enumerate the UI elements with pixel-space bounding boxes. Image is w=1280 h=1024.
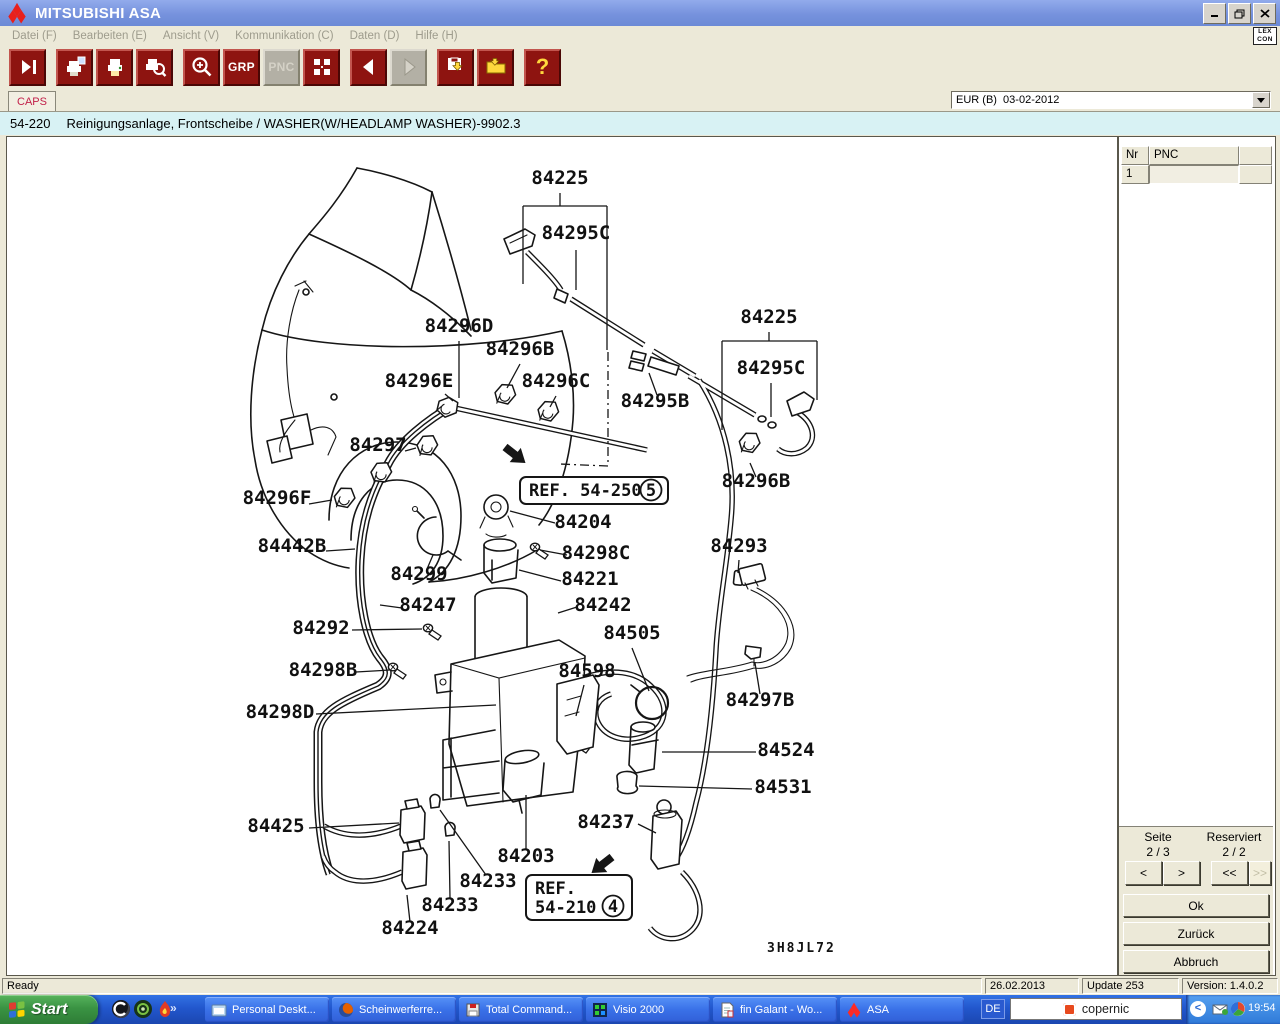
tray-collapse-chevron[interactable]: < (1190, 1001, 1206, 1017)
document-icon (719, 1002, 735, 1018)
restore-icon (1234, 9, 1245, 19)
page-prev-button[interactable]: < (1125, 861, 1162, 885)
part-number-label[interactable]: 84598 (558, 660, 615, 682)
part-number-label[interactable]: 84298C (562, 542, 631, 564)
washer-pump-cylinder (631, 722, 655, 732)
status-update: Update 253 (1082, 978, 1179, 994)
pump-packing (617, 771, 638, 793)
part-number-label[interactable]: 84298D (246, 701, 315, 723)
menu-item-datei[interactable]: Datei (F) (4, 30, 65, 42)
copernic-search-box[interactable]: copernic (1010, 998, 1182, 1020)
task-word-document[interactable]: fin Galant - Wo... (713, 997, 837, 1022)
globe-tray-icon[interactable] (1230, 1001, 1246, 1017)
ref-box[interactable]: REF. 54-2505 (520, 477, 668, 504)
page-next-button[interactable]: > (1163, 861, 1200, 885)
task-firefox[interactable]: Scheinwerferre... (332, 997, 456, 1022)
lexcon-badge: LEX CON (1253, 27, 1277, 45)
part-number-label[interactable]: 84442B (258, 535, 327, 557)
task-label: Total Command... (486, 1004, 572, 1016)
tab-row: CAPS EUR (B) 03-02-2012 (0, 89, 1280, 111)
pnc-button: PNC (263, 49, 300, 86)
close-icon (1260, 9, 1270, 18)
quicklaunch-c-icon[interactable] (112, 1000, 130, 1018)
print-setup-icon (63, 55, 87, 79)
start-button[interactable]: Start (0, 995, 98, 1024)
lexcon-line1: LEX (1254, 28, 1276, 36)
toolbar: GRP PNC ? (0, 45, 1280, 89)
main-area: REF. 54-2505REF.54-2104 8422584295C84296… (0, 135, 1280, 977)
part-number-label[interactable]: 84221 (561, 568, 618, 590)
parts-panel: Nr PNC 1 Seite 2 / 3 Reserviert 2 / 2 < … (1118, 136, 1276, 976)
lexcon-line2: CON (1254, 36, 1276, 44)
menu-item-daten[interactable]: Daten (D) (342, 30, 408, 42)
washer-nozzle (787, 392, 814, 416)
save-export-icon (444, 55, 468, 79)
part-number-label[interactable]: 84298B (289, 659, 358, 681)
headlamp-washer-motor (402, 848, 427, 889)
part-number-label[interactable]: 84425 (247, 815, 304, 837)
column-header-extra (1239, 146, 1272, 165)
task-label: ASA (867, 1004, 889, 1016)
status-date: 26.02.2013 (985, 978, 1079, 994)
part-number-label[interactable]: 84296E (385, 370, 454, 392)
menu-item-hilfe[interactable]: Hilfe (H) (407, 30, 465, 42)
seite-value: 2 / 3 (1127, 845, 1189, 859)
chevron-down-icon (1257, 98, 1265, 103)
part-number-label[interactable]: 84242 (574, 594, 631, 616)
windows-logo-icon (8, 1001, 26, 1019)
region-select-dropdown-button[interactable] (1252, 92, 1270, 108)
window-title: MITSUBISHI ASA (35, 5, 161, 22)
diagram-canvas[interactable]: REF. 54-2505REF.54-2104 8422584295C84296… (6, 136, 1118, 976)
exit-button[interactable] (9, 49, 46, 86)
zoom-icon (190, 55, 214, 79)
forward-icon (397, 55, 421, 79)
row-pnc-cell[interactable] (1149, 165, 1239, 184)
part-number-label[interactable]: 84524 (757, 739, 814, 761)
taskbar: Start » Personal Deskt... Scheinwerferre… (0, 995, 1280, 1024)
quicklaunch-green-icon[interactable] (134, 1000, 152, 1018)
pnc-label: PNC (268, 60, 294, 74)
headlamp-washer-pump (651, 811, 682, 869)
minimize-icon (1210, 9, 1220, 18)
ref-arrow-icon (499, 440, 531, 470)
table-row[interactable]: 1 (1121, 165, 1272, 184)
task-total-commander[interactable]: Total Command... (459, 997, 583, 1022)
harness-clip (745, 646, 761, 659)
menu-item-bearbeiten[interactable]: Bearbeiten (E) (65, 30, 155, 42)
mail-tray-icon[interactable] (1212, 1001, 1228, 1017)
cancel-button[interactable]: Abbruch (1123, 950, 1269, 973)
mitsubishi-logo-icon (6, 2, 28, 24)
task-asa[interactable]: ASA (840, 997, 964, 1022)
part-number-label[interactable]: 84295B (621, 390, 690, 412)
task-label: fin Galant - Wo... (740, 1004, 822, 1016)
part-number-label[interactable]: 84296B (486, 338, 555, 360)
reserviert-label: Reserviert (1199, 830, 1269, 844)
minimize-button[interactable] (1203, 3, 1226, 24)
part-number-labels: 8422584295C84296D84296B84296E84296C84225… (243, 167, 815, 939)
folder-window-icon (211, 1002, 227, 1018)
parts-table-header: Nr PNC (1121, 146, 1272, 165)
ref-box-text: REF. 54-250 (529, 481, 642, 501)
part-number-label[interactable]: 84224 (381, 917, 438, 939)
part-number-label[interactable]: 84531 (754, 776, 811, 798)
tile-view-button[interactable] (303, 49, 340, 86)
task-personal-desktop[interactable]: Personal Deskt... (205, 997, 329, 1022)
task-label: Scheinwerferre... (359, 1004, 442, 1016)
close-button[interactable] (1253, 3, 1276, 24)
grp-label: GRP (228, 60, 255, 74)
print-setup-button[interactable] (56, 49, 93, 86)
section-code: 54-220 (10, 116, 50, 131)
ref-box[interactable]: REF.54-2104 (526, 875, 632, 920)
pager: Seite 2 / 3 Reserviert 2 / 2 < > << >> O… (1119, 826, 1273, 975)
part-number-label[interactable]: 84297 (349, 434, 406, 456)
part-number-label[interactable]: 84295C (542, 222, 611, 244)
ok-button[interactable]: Ok (1123, 894, 1269, 917)
visio-icon (592, 1002, 608, 1018)
status-bar: Ready 26.02.2013 Update 253 Version: 1.4… (0, 977, 1280, 995)
part-number-label[interactable]: 84203 (497, 845, 554, 867)
parts-table: Nr PNC 1 (1121, 146, 1272, 184)
back-button[interactable] (350, 49, 387, 86)
part-number-label[interactable]: 84293 (710, 535, 767, 557)
task-label: Visio 2000 (613, 1004, 664, 1016)
tile-view-icon (310, 55, 334, 79)
column-header-pnc[interactable]: PNC (1149, 146, 1239, 165)
print-button[interactable] (96, 49, 133, 86)
harness-connector (738, 563, 765, 585)
open-import-icon (484, 55, 508, 79)
plate-code: 3H8JL72 (767, 941, 836, 956)
print-icon (103, 55, 127, 79)
washer-hoses (318, 252, 812, 939)
reserved-last-button: >> (1249, 861, 1271, 885)
taskbar-clock: 19:54 (1248, 1002, 1276, 1014)
part-number-label[interactable]: 84225 (531, 167, 588, 189)
save-export-button[interactable] (437, 49, 474, 86)
tab-caps[interactable]: CAPS (8, 91, 56, 112)
part-number-label[interactable]: 84299 (390, 563, 447, 585)
ref-box-number: 5 (646, 481, 656, 501)
reserved-first-button[interactable]: << (1211, 861, 1248, 885)
part-number-label[interactable]: 84292 (292, 617, 349, 639)
row-extra-cell (1239, 165, 1272, 184)
seite-label: Seite (1127, 830, 1189, 844)
grp-button[interactable]: GRP (223, 49, 260, 86)
filler-cap (484, 495, 508, 519)
breadcrumb: 54-220 Reinigungsanlage, Frontscheibe / … (0, 111, 1280, 135)
restore-button[interactable] (1228, 3, 1251, 24)
part-number-label[interactable]: 84233 (421, 894, 478, 916)
exit-icon (16, 55, 40, 79)
menu-item-kommunikation[interactable]: Kommunikation (C) (227, 30, 341, 42)
title-bar: MITSUBISHI ASA (0, 0, 1280, 26)
washer-nozzle (504, 229, 535, 254)
part-number-label[interactable]: 84247 (399, 594, 456, 616)
forward-button (390, 49, 427, 86)
ref-box-text: REF. (535, 879, 576, 899)
part-number-label[interactable]: 84296B (722, 470, 791, 492)
part-number-label[interactable]: 84295C (737, 357, 806, 379)
zoom-button[interactable] (183, 49, 220, 86)
floppy-icon (465, 1002, 481, 1018)
menu-item-ansicht[interactable]: Ansicht (V) (155, 30, 227, 42)
part-number-label[interactable]: 84296F (243, 487, 312, 509)
part-number-label[interactable]: 84296C (522, 370, 591, 392)
region-select[interactable]: EUR (B) 03-02-2012 (951, 91, 1271, 109)
status-version: Version: 1.4.0.2 (1182, 978, 1278, 994)
task-visio-2000[interactable]: Visio 2000 (586, 997, 710, 1022)
parts-diagram: REF. 54-2505REF.54-2104 8422584295C84296… (7, 137, 1117, 975)
part-number-label[interactable]: 84233 (459, 870, 516, 892)
back-icon (357, 55, 381, 79)
open-import-button[interactable] (477, 49, 514, 86)
washer-pump (484, 539, 516, 551)
mitsubishi-logo-icon (846, 1002, 862, 1018)
column-header-nr[interactable]: Nr (1121, 146, 1149, 165)
reserviert-value: 2 / 2 (1199, 845, 1269, 859)
menu-bar: Datei (F)Bearbeiten (E)Ansicht (V)Kommun… (0, 26, 1280, 45)
quicklaunch-more-chevron[interactable]: » (170, 1001, 177, 1015)
copernic-icon (1063, 1003, 1076, 1016)
row-nr-cell[interactable]: 1 (1121, 165, 1149, 184)
region-select-value: EUR (B) 03-02-2012 (952, 94, 1059, 106)
firefox-icon (338, 1002, 354, 1018)
back-button-panel[interactable]: Zurück (1123, 922, 1269, 945)
part-number-label[interactable]: 84505 (603, 622, 660, 644)
help-button[interactable]: ? (524, 49, 561, 86)
headlamp-washer-motor (400, 806, 425, 843)
section-title: Reinigungsanlage, Frontscheibe / WASHER(… (66, 116, 520, 131)
part-number-label[interactable]: 84237 (577, 811, 634, 833)
copernic-label: copernic (1082, 1002, 1129, 1016)
help-label: ? (536, 54, 549, 80)
part-number-label[interactable]: 84204 (554, 511, 611, 533)
ref-box-text: 54-210 (535, 898, 596, 918)
language-indicator[interactable]: DE (981, 999, 1005, 1019)
part-number-label[interactable]: 84296D (425, 315, 494, 337)
part-number-label[interactable]: 84225 (740, 306, 797, 328)
tank-bracket (557, 675, 599, 754)
tab-caps-label: CAPS (17, 96, 47, 108)
print-preview-button[interactable] (136, 49, 173, 86)
print-preview-icon (143, 55, 167, 79)
part-number-label[interactable]: 84297B (726, 689, 795, 711)
ref-box-number: 4 (608, 897, 618, 917)
task-label: Personal Deskt... (232, 1004, 316, 1016)
status-ready: Ready (2, 978, 982, 994)
start-label: Start (31, 1001, 67, 1019)
